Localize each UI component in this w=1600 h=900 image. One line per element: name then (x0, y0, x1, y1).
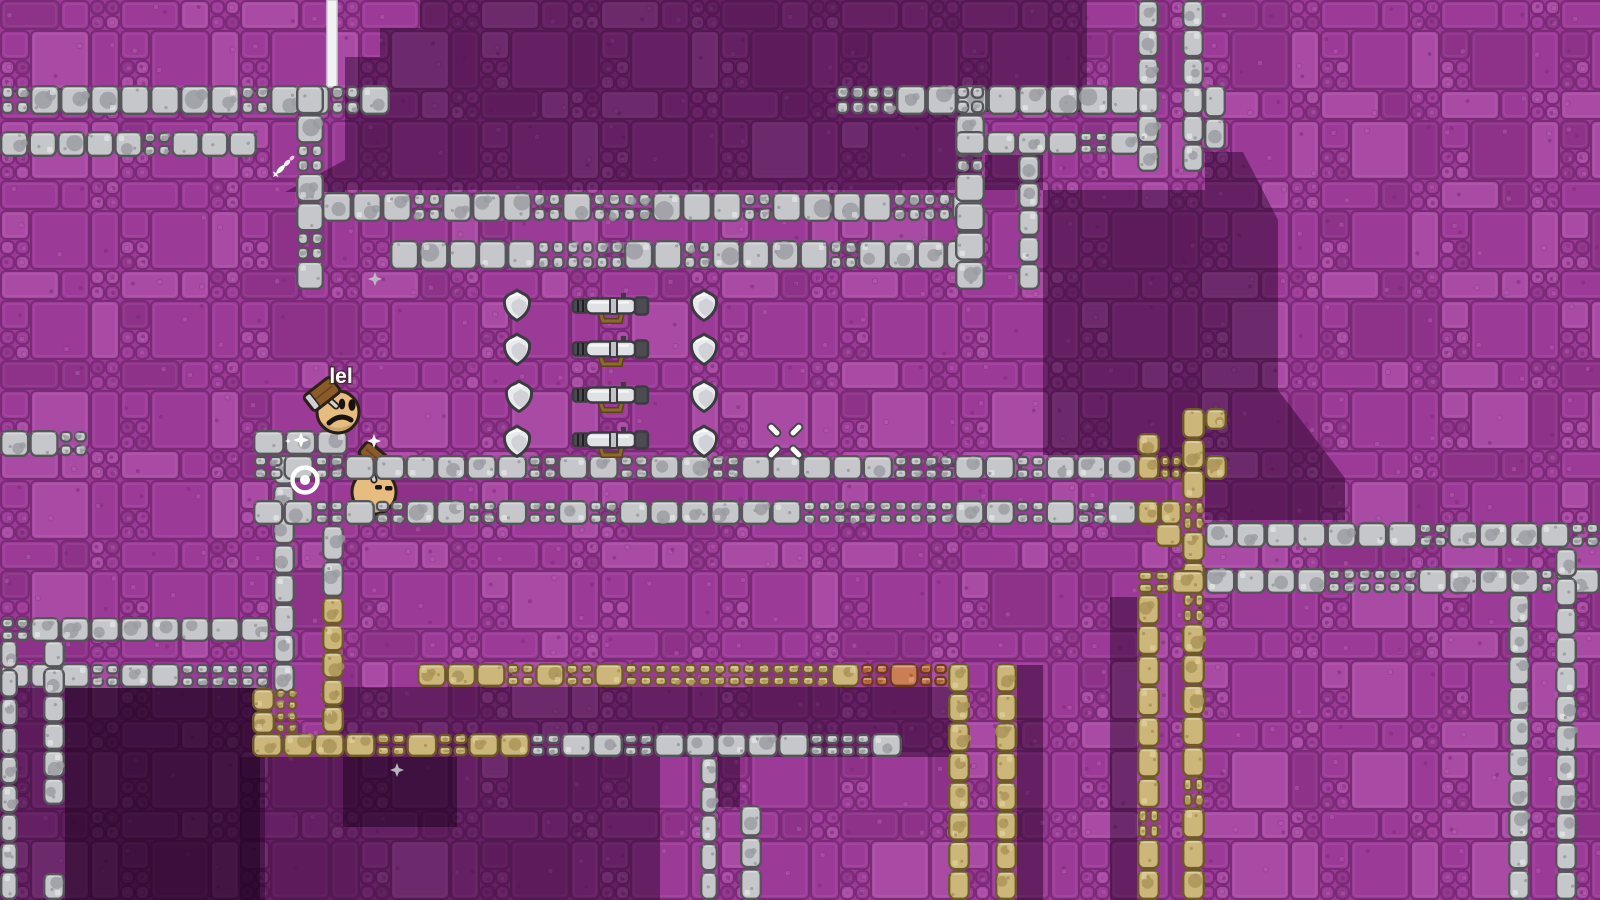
game-canvas[interactable]: lel (0, 0, 1600, 900)
grapple-beam (327, 0, 337, 87)
player-name-label: lel (329, 365, 352, 388)
game-viewport[interactable]: lel (0, 0, 1600, 900)
